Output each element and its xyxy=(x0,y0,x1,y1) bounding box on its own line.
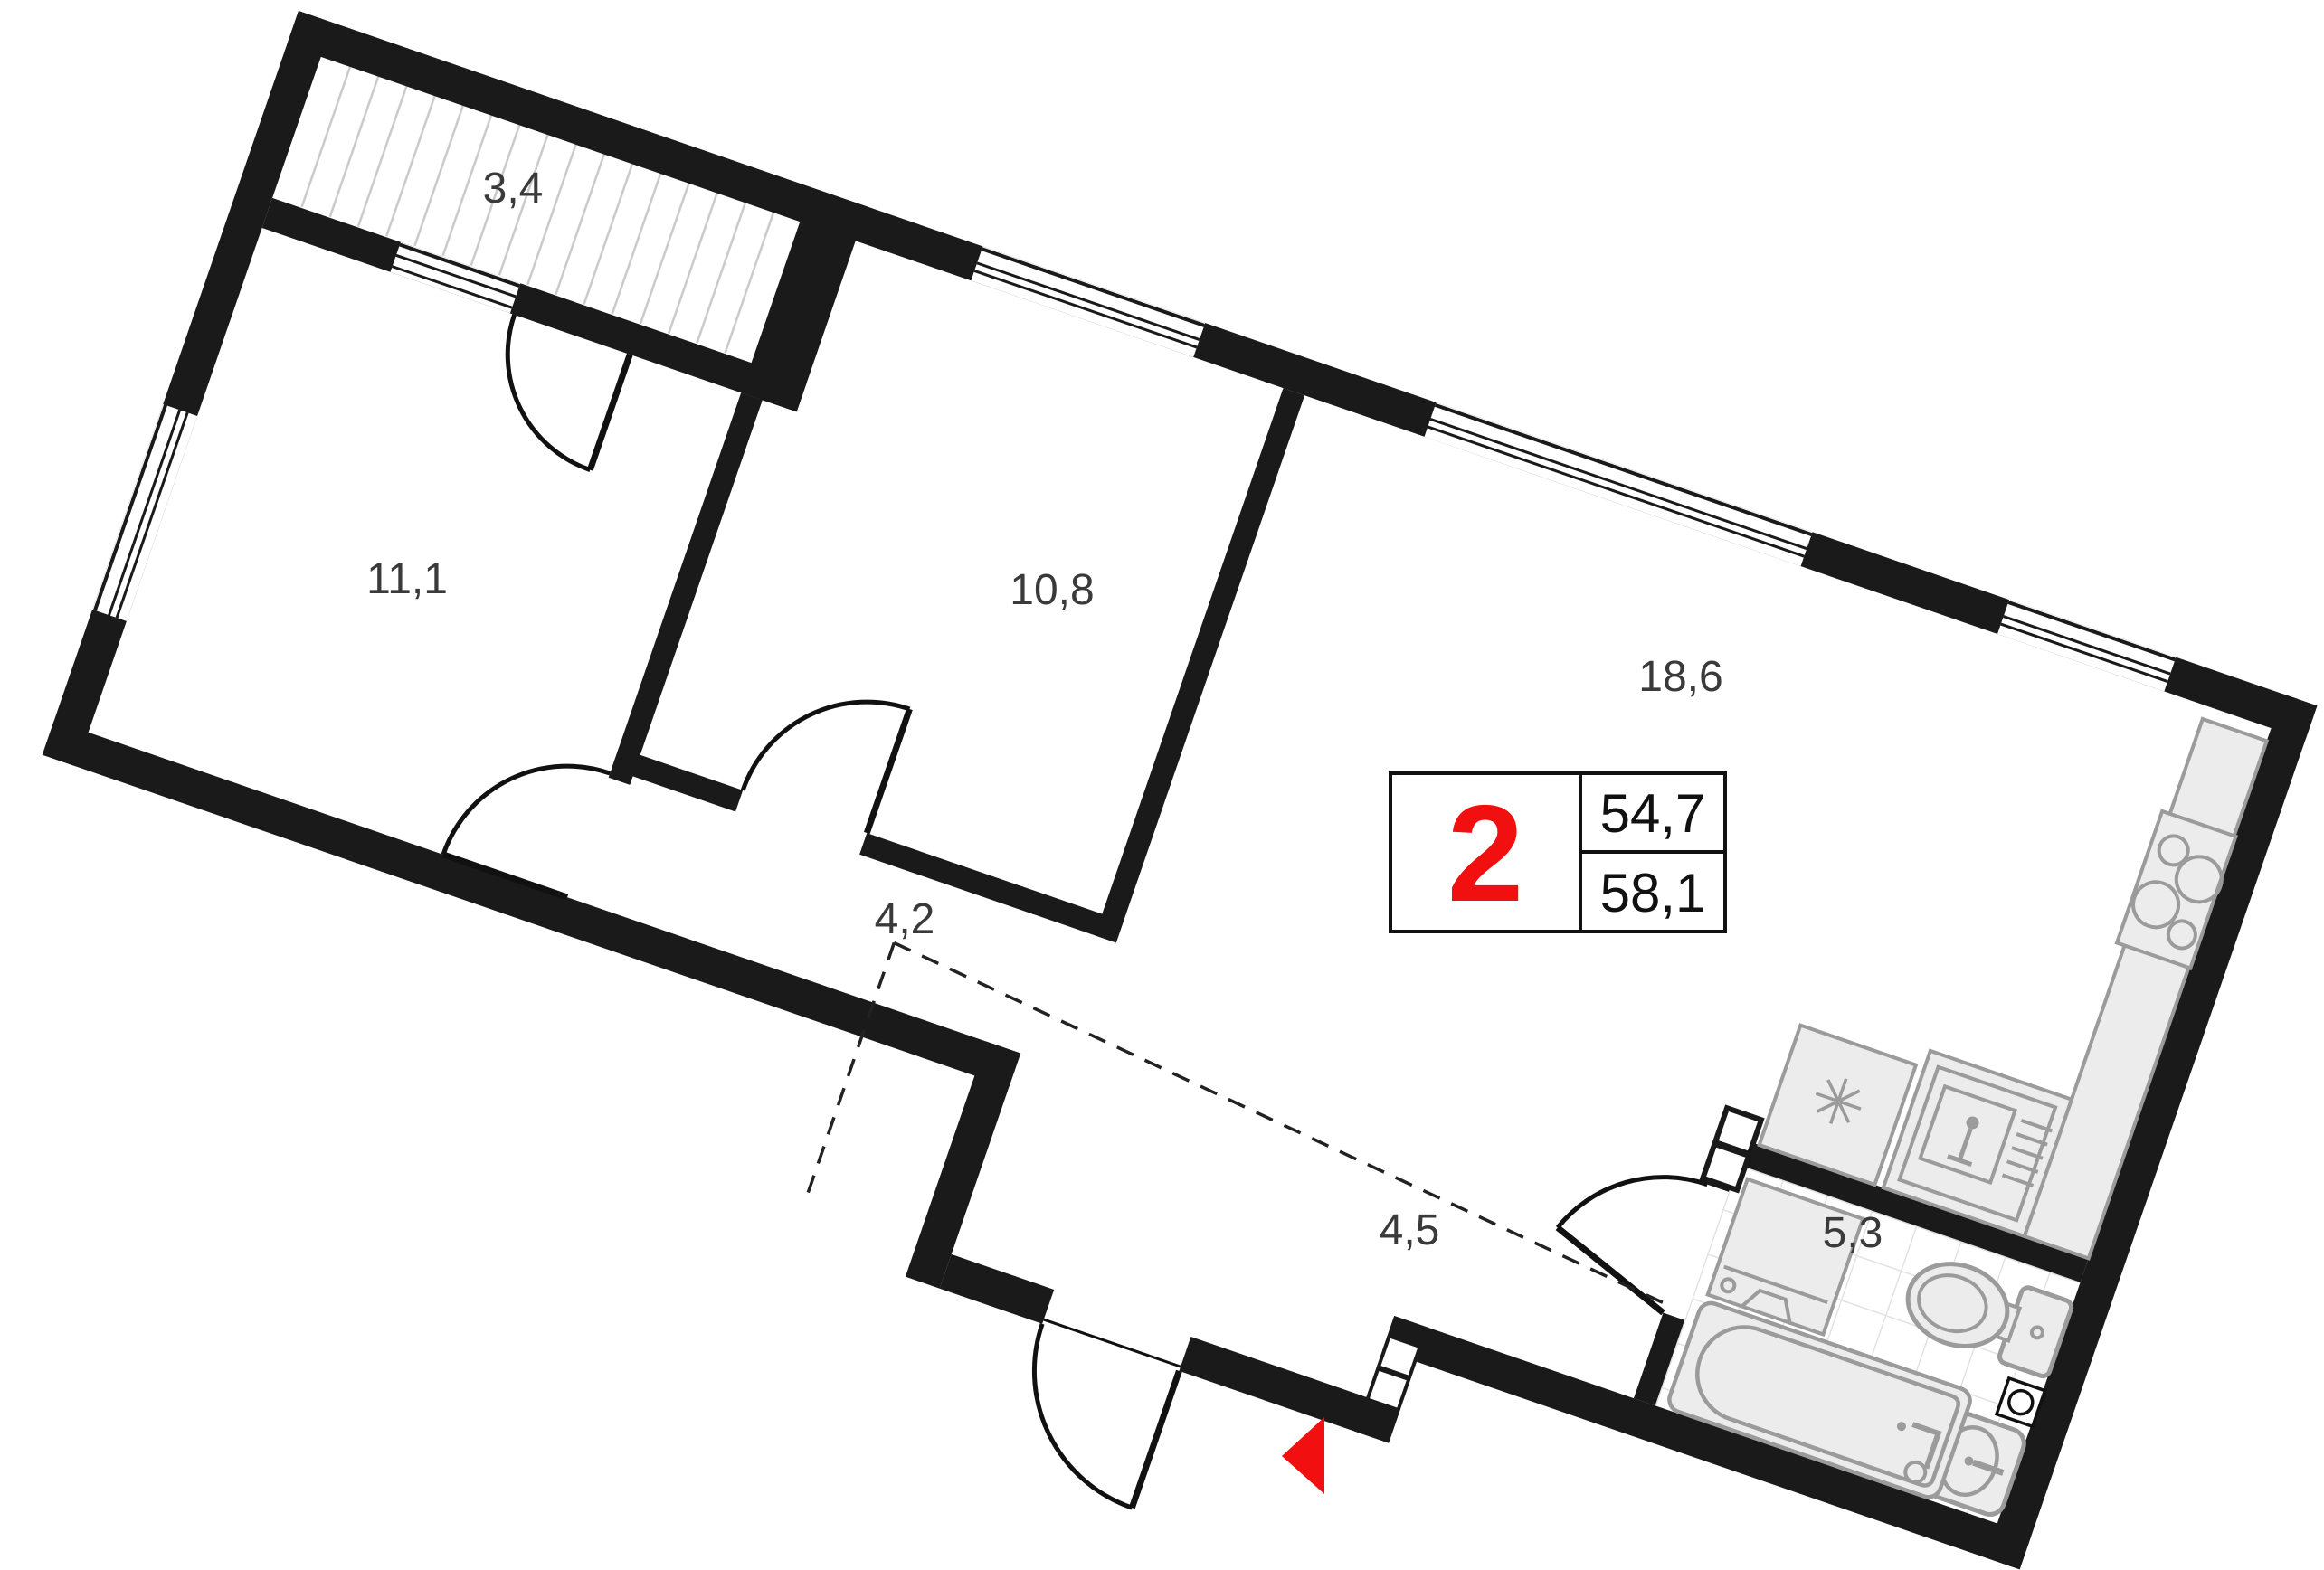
legend-rooms-count: 2 xyxy=(1447,777,1524,931)
entrance-arrow-icon xyxy=(1282,1417,1324,1494)
legend-living-area: 54,7 xyxy=(1600,783,1706,844)
window-icon xyxy=(1425,402,1813,566)
wall-room2-kitchen xyxy=(1095,388,1304,942)
wall-step-hall xyxy=(906,1042,1020,1289)
wall-left xyxy=(43,11,333,767)
room-label-bedroom-2: 10,8 xyxy=(1010,566,1094,614)
room-label-hall: 4,5 xyxy=(1380,1206,1440,1254)
entrance-door-arc-icon xyxy=(995,1319,1181,1508)
plan-rotated-group: ✳ xyxy=(0,11,2317,1570)
window-icon xyxy=(92,404,197,621)
room-label-loggia: 3,4 xyxy=(483,165,544,213)
door-arc-icon xyxy=(743,667,909,833)
room-label-corridor: 4,2 xyxy=(875,895,935,943)
wall-hall-bottom-left xyxy=(940,1254,1054,1324)
window-icon xyxy=(1997,600,2176,691)
door-arc-icon xyxy=(1542,1143,1707,1313)
floor-plan-svg: ✳ xyxy=(0,0,2324,1570)
room-label-bathroom: 5,3 xyxy=(1823,1209,1883,1257)
room-label-bedroom-1: 11,1 xyxy=(366,555,448,603)
room-label-kitchen-living: 18,6 xyxy=(1638,653,1722,701)
floor-plan-canvas: ✳ xyxy=(0,0,2324,1570)
window-icon xyxy=(971,246,1205,356)
wall-room1-room2 xyxy=(609,392,763,785)
doors-group xyxy=(213,315,1849,1570)
legend: 2 54,7 58,1 xyxy=(1390,773,1725,932)
kitchen-group: ✳ xyxy=(1760,628,2271,1260)
legend-total-area: 58,1 xyxy=(1600,863,1706,923)
